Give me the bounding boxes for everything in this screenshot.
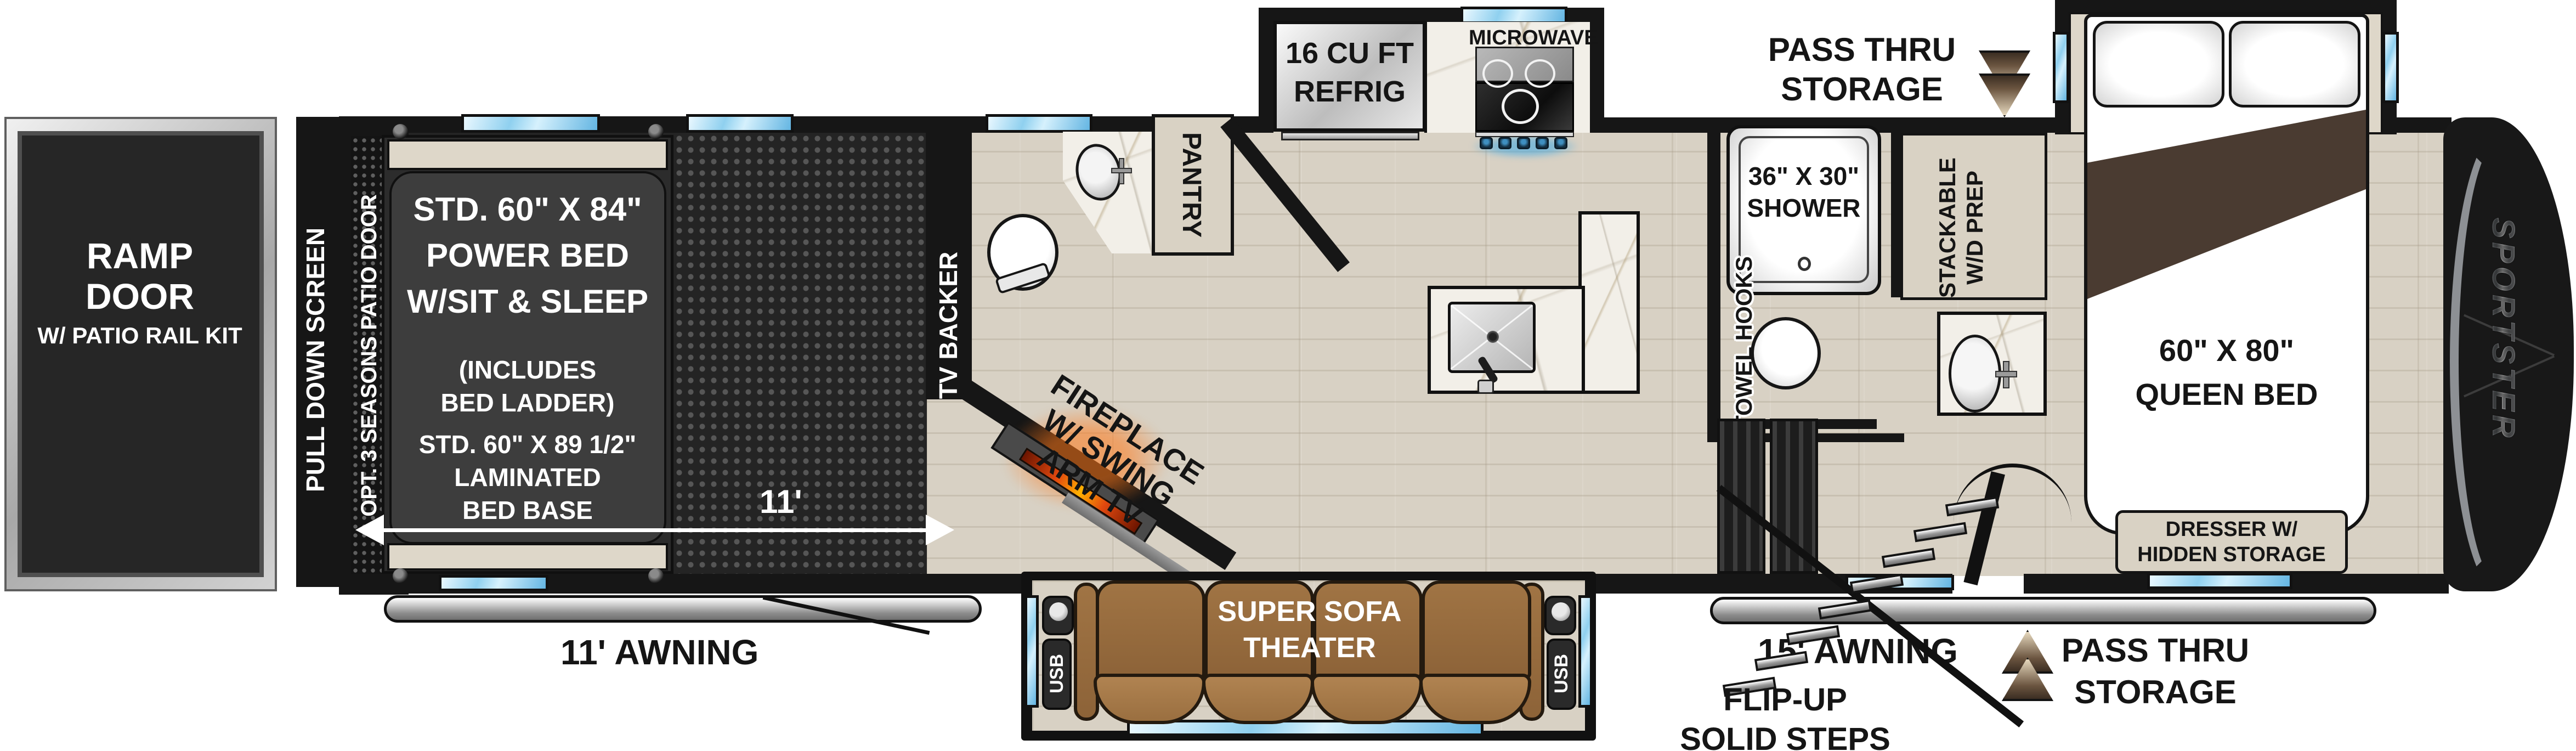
ramp-door-panel [18, 131, 264, 577]
awning-11ft-tube [384, 595, 982, 623]
sofa-window-right [1578, 595, 1593, 708]
ramp-door-line1: RAMP DOOR [33, 236, 247, 317]
bath-toilet [1751, 317, 1821, 389]
pass-thru-top-label: PASS THRU STORAGE [1752, 30, 1972, 109]
awning-15ft-tube [1710, 597, 2376, 624]
pass-thru-top-line1: PASS THRU [1768, 30, 1956, 70]
sofa-window-left [1024, 595, 1039, 708]
bed-peg-2 [648, 124, 664, 139]
wd-prep-line2: W/D PREP [1961, 171, 1989, 285]
vanity-faucet-cross [1995, 371, 2017, 377]
burner-1 [1482, 59, 1513, 88]
island-counter-vertical [1578, 211, 1640, 394]
queen-bed-pillow-right [2229, 21, 2360, 108]
wd-closet-wall [1891, 133, 1901, 297]
bedroom-bottom-window [2147, 573, 2292, 589]
dresser-line1: DRESSER W/ [2166, 517, 2298, 542]
cupholder-right-cup [1552, 602, 1570, 621]
bath-left-wall [1707, 132, 1720, 442]
queen-bed-label: 60" X 80" QUEEN BED [2090, 326, 2364, 414]
sofa-line1: SUPER SOFA [1218, 594, 1401, 630]
range-knob-4 [1536, 137, 1549, 149]
refrigerator-label: 16 CU FT REFRIG [1273, 34, 1426, 111]
power-bed-line6: STD. 60" X 89 1/2" [419, 428, 636, 461]
garage-bottom-window [439, 575, 548, 591]
usb-label-left: USB [1046, 638, 1068, 709]
power-bed-line3: W/SIT & SLEEP [407, 279, 648, 325]
wd-prep-label: STACKABLE W/D PREP [1934, 151, 1989, 304]
range-knob-3 [1517, 137, 1530, 149]
pass-thru-down-arrow-2 [1979, 74, 2030, 117]
burner-3 [1502, 89, 1539, 124]
pull-down-screen-label: PULL DOWN SCREEN [301, 168, 330, 552]
bed-slide-window-left [2053, 32, 2069, 103]
refrigerator-sill [1281, 132, 1419, 140]
half-bath-faucet-cross [1111, 168, 1132, 173]
brand-logo: SPORTSTER [2482, 176, 2526, 483]
bed-peg-3 [393, 568, 408, 584]
usb-label-right: USB [1550, 638, 1572, 709]
dimension-line-11ft [361, 528, 949, 532]
wd-prep-line1: STACKABLE [1934, 157, 1961, 298]
floorplan-canvas: RAMP DOOR W/ PATIO RAIL KIT PULL DOWN SC… [0, 0, 2576, 751]
flip-up-line1: FLIP-UP [1723, 680, 1847, 720]
dresser-line2: HIDDEN STORAGE [2137, 542, 2325, 567]
bed-slide-window-right [2382, 32, 2399, 103]
queen-bed-line2: QUEEN BED [2136, 375, 2318, 414]
range-knob-1 [1480, 137, 1493, 149]
power-bed-foot-board [387, 543, 668, 571]
top-wall-bedroom [2397, 117, 2452, 133]
cupholder-left-cup [1049, 602, 1068, 621]
bath-window [986, 114, 1092, 133]
sofa-label: SUPER SOFA THEATER [1145, 594, 1474, 666]
refrig-line2: REFRIG [1294, 72, 1406, 111]
range-knob-rail [1475, 132, 1574, 137]
shower-drain [1798, 257, 1811, 271]
power-bed-head-board [387, 139, 668, 170]
range-knob-2 [1498, 137, 1511, 149]
power-bed-label: STD. 60" X 84" POWER BED W/SIT & SLEEP (… [390, 187, 665, 527]
queen-bed-pillow-left [2093, 21, 2224, 108]
pass-thru-bottom-line1: PASS THRU [2062, 630, 2249, 671]
shower-line1: 36" X 30" [1748, 160, 1859, 192]
power-bed-line1: STD. 60" X 84" [413, 187, 642, 233]
pantry-label: PANTRY [1178, 114, 1205, 256]
power-bed-line5: BED LADDER) [441, 386, 615, 419]
power-bed-line2: POWER BED [426, 233, 629, 279]
pass-thru-bottom-line2: STORAGE [2074, 671, 2237, 713]
island-sink [1448, 302, 1536, 373]
range-knob-5 [1554, 137, 1567, 149]
garage-window-2 [686, 114, 794, 133]
patio-door-option-label: OPT. 3 SEASONS PATIO DOOR [356, 163, 382, 547]
queen-bed-line1: 60" X 80" [2159, 326, 2294, 375]
power-bed-line7: LAMINATED [454, 461, 601, 494]
flip-up-steps-label: FLIP-UP SOLID STEPS [1656, 680, 1914, 751]
refrig-line1: 16 CU FT [1286, 34, 1414, 72]
burner-2 [1525, 59, 1555, 88]
flip-up-line2: SOLID STEPS [1680, 720, 1890, 751]
kitchen-bump-left-wall [1259, 8, 1273, 133]
sofa-window-bottom [1127, 720, 1484, 736]
island-faucet-base [1477, 380, 1494, 394]
bed-peg-4 [648, 568, 664, 584]
vanity-sink [1949, 335, 2001, 413]
pass-thru-bottom-label: PASS THRU STORAGE [2051, 630, 2260, 713]
sofa-line2: THEATER [1243, 630, 1376, 666]
power-bed-line8: BED BASE [462, 494, 593, 527]
ramp-door-line2: W/ PATIO RAIL KIT [37, 323, 242, 348]
tv-backer-label: TV BACKER [935, 188, 962, 462]
shower-line2: SHOWER [1747, 192, 1861, 224]
pass-thru-top-line2: STORAGE [1781, 70, 1943, 109]
ramp-door-label: RAMP DOOR W/ PATIO RAIL KIT [33, 236, 247, 348]
power-bed-line4: (INCLUDES [459, 353, 596, 386]
garage-window-1 [461, 114, 600, 133]
dimension-label: 11' [760, 483, 802, 521]
dresser-label: DRESSER W/ HIDDEN STORAGE [2115, 517, 2348, 567]
bed-peg-1 [393, 124, 408, 139]
awning-11ft-label: 11' AWNING [561, 632, 758, 673]
